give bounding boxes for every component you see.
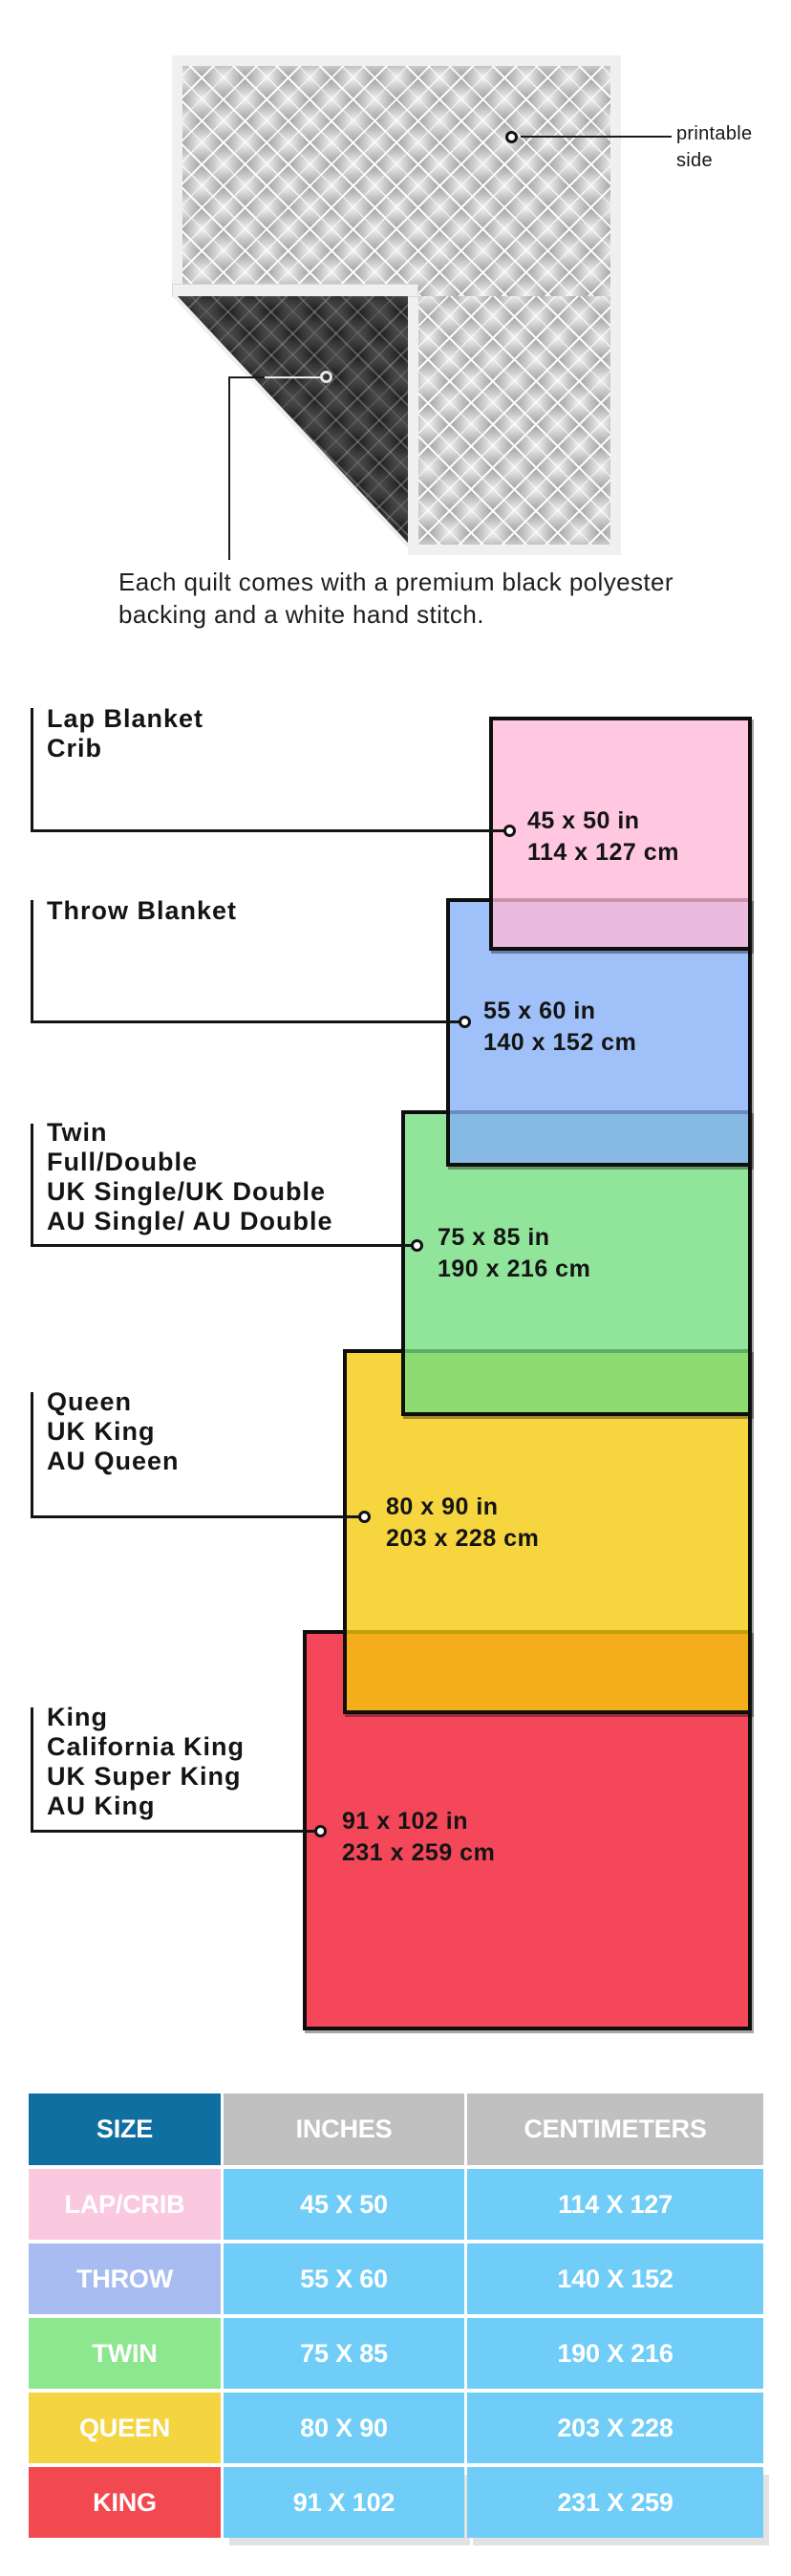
table-cell-centimeters: 203 X 228 <box>467 2393 763 2463</box>
leader-vline-lap <box>31 708 33 832</box>
table-cell-size: TWIN <box>29 2318 221 2389</box>
leader-dot-king-icon <box>314 1825 327 1837</box>
table-cell-inches: 45 X 50 <box>224 2169 464 2240</box>
size-table: SIZE INCHES CENTIMETERS LAP/CRIB 45 X 50… <box>29 2093 763 2538</box>
quilt-size-infographic: printable side Each quilt comes with a p… <box>0 0 791 2576</box>
size-label-line: Full/Double <box>47 1148 333 1177</box>
table-header-inches: INCHES <box>224 2093 464 2165</box>
table-cell-size: THROW <box>29 2243 221 2314</box>
quilt-front-bottom <box>408 296 621 555</box>
backing-leader-vline <box>228 376 230 560</box>
leader-vline-twin <box>31 1124 33 1247</box>
leader-vline-king <box>31 1707 33 1833</box>
table-cell-inches: 75 X 85 <box>224 2318 464 2389</box>
dimension-inches: 45 x 50 in <box>527 805 679 837</box>
table-cell-centimeters: 140 X 152 <box>467 2243 763 2314</box>
size-label-line: Queen <box>47 1387 180 1417</box>
table-cell-inches: 91 X 102 <box>224 2467 464 2538</box>
leader-hline-throw <box>31 1020 462 1023</box>
leader-vline-queen <box>31 1392 33 1518</box>
backing-caption-line1: Each quilt comes with a premium black po… <box>118 566 730 598</box>
backing-caption-line2: backing and a white hand stitch. <box>118 598 730 631</box>
size-label-queen: Queen UK King AU Queen <box>47 1387 180 1476</box>
dimension-inches: 91 x 102 in <box>342 1806 495 1837</box>
dimension-centimeters: 231 x 259 cm <box>342 1837 495 1869</box>
size-label-twin: Twin Full/Double UK Single/UK Double AU … <box>47 1118 333 1236</box>
leader-hline-twin <box>31 1244 415 1247</box>
dimension-inches: 75 x 85 in <box>438 1222 590 1254</box>
size-label-lap-crib: Lap Blanket Crib <box>47 704 203 763</box>
leader-dot-throw-icon <box>459 1016 471 1028</box>
leader-vline-throw <box>31 900 33 1023</box>
leader-hline-lap <box>31 829 506 832</box>
printable-side-leader-line <box>521 136 672 138</box>
dimensions-king: 91 x 102 in 231 x 259 cm <box>342 1806 495 1869</box>
size-label-king: King California King UK Super King AU Ki… <box>47 1703 245 1821</box>
table-cell-inches: 80 X 90 <box>224 2393 464 2463</box>
size-label-line: AU Queen <box>47 1447 180 1476</box>
size-label-line: Crib <box>47 734 203 763</box>
backing-caption: Each quilt comes with a premium black po… <box>118 566 730 631</box>
table-cell-inches: 55 X 60 <box>224 2243 464 2314</box>
dimension-centimeters: 203 x 228 cm <box>386 1523 539 1555</box>
table-cell-size: KING <box>29 2467 221 2538</box>
table-header-size: SIZE <box>29 2093 221 2165</box>
dimensions-throw: 55 x 60 in 140 x 152 cm <box>483 996 636 1059</box>
table-cell-centimeters: 231 X 259 <box>467 2467 763 2538</box>
size-label-throw: Throw Blanket <box>47 896 237 926</box>
dimension-inches: 55 x 60 in <box>483 996 636 1027</box>
leader-dot-lap-icon <box>503 825 516 837</box>
backing-marker-icon <box>320 371 332 383</box>
dimensions-twin: 75 x 85 in 190 x 216 cm <box>438 1222 590 1285</box>
table-cell-size: QUEEN <box>29 2393 221 2463</box>
size-label-line: California King <box>47 1732 245 1762</box>
size-label-line: UK King <box>47 1417 180 1447</box>
quilt-front-top <box>172 55 621 296</box>
size-label-line: AU Single/ AU Double <box>47 1207 333 1236</box>
leader-hline-king <box>31 1830 318 1833</box>
dimension-centimeters: 114 x 127 cm <box>527 837 679 869</box>
quilt-binding-strip <box>172 284 418 297</box>
table-cell-centimeters: 114 X 127 <box>467 2169 763 2240</box>
backing-leader-line-dark <box>228 376 265 378</box>
size-label-line: King <box>47 1703 245 1732</box>
size-label-line: Twin <box>47 1118 333 1148</box>
size-label-line: UK Super King <box>47 1762 245 1792</box>
printable-side-marker-icon <box>505 131 518 143</box>
table-header-centimeters: CENTIMETERS <box>467 2093 763 2165</box>
dimensions-lap-crib: 45 x 50 in 114 x 127 cm <box>527 805 679 869</box>
leader-hline-queen <box>31 1515 362 1518</box>
table-cell-size: LAP/CRIB <box>29 2169 221 2240</box>
printable-side-label: printable side <box>676 120 752 174</box>
size-label-line: UK Single/UK Double <box>47 1177 333 1207</box>
printable-side-label-line2: side <box>676 147 752 174</box>
table-cell-centimeters: 190 X 216 <box>467 2318 763 2389</box>
size-label-line: AU King <box>47 1792 245 1821</box>
leader-dot-queen-icon <box>358 1511 371 1523</box>
dimension-centimeters: 140 x 152 cm <box>483 1027 636 1059</box>
printable-side-label-line1: printable <box>676 120 752 147</box>
dimension-centimeters: 190 x 216 cm <box>438 1254 590 1285</box>
backing-leader-line-light <box>265 376 321 378</box>
leader-dot-twin-icon <box>411 1239 423 1252</box>
dimension-inches: 80 x 90 in <box>386 1492 539 1523</box>
size-label-line: Lap Blanket <box>47 704 203 734</box>
size-label-line: Throw Blanket <box>47 896 237 926</box>
dimensions-queen: 80 x 90 in 203 x 228 cm <box>386 1492 539 1555</box>
